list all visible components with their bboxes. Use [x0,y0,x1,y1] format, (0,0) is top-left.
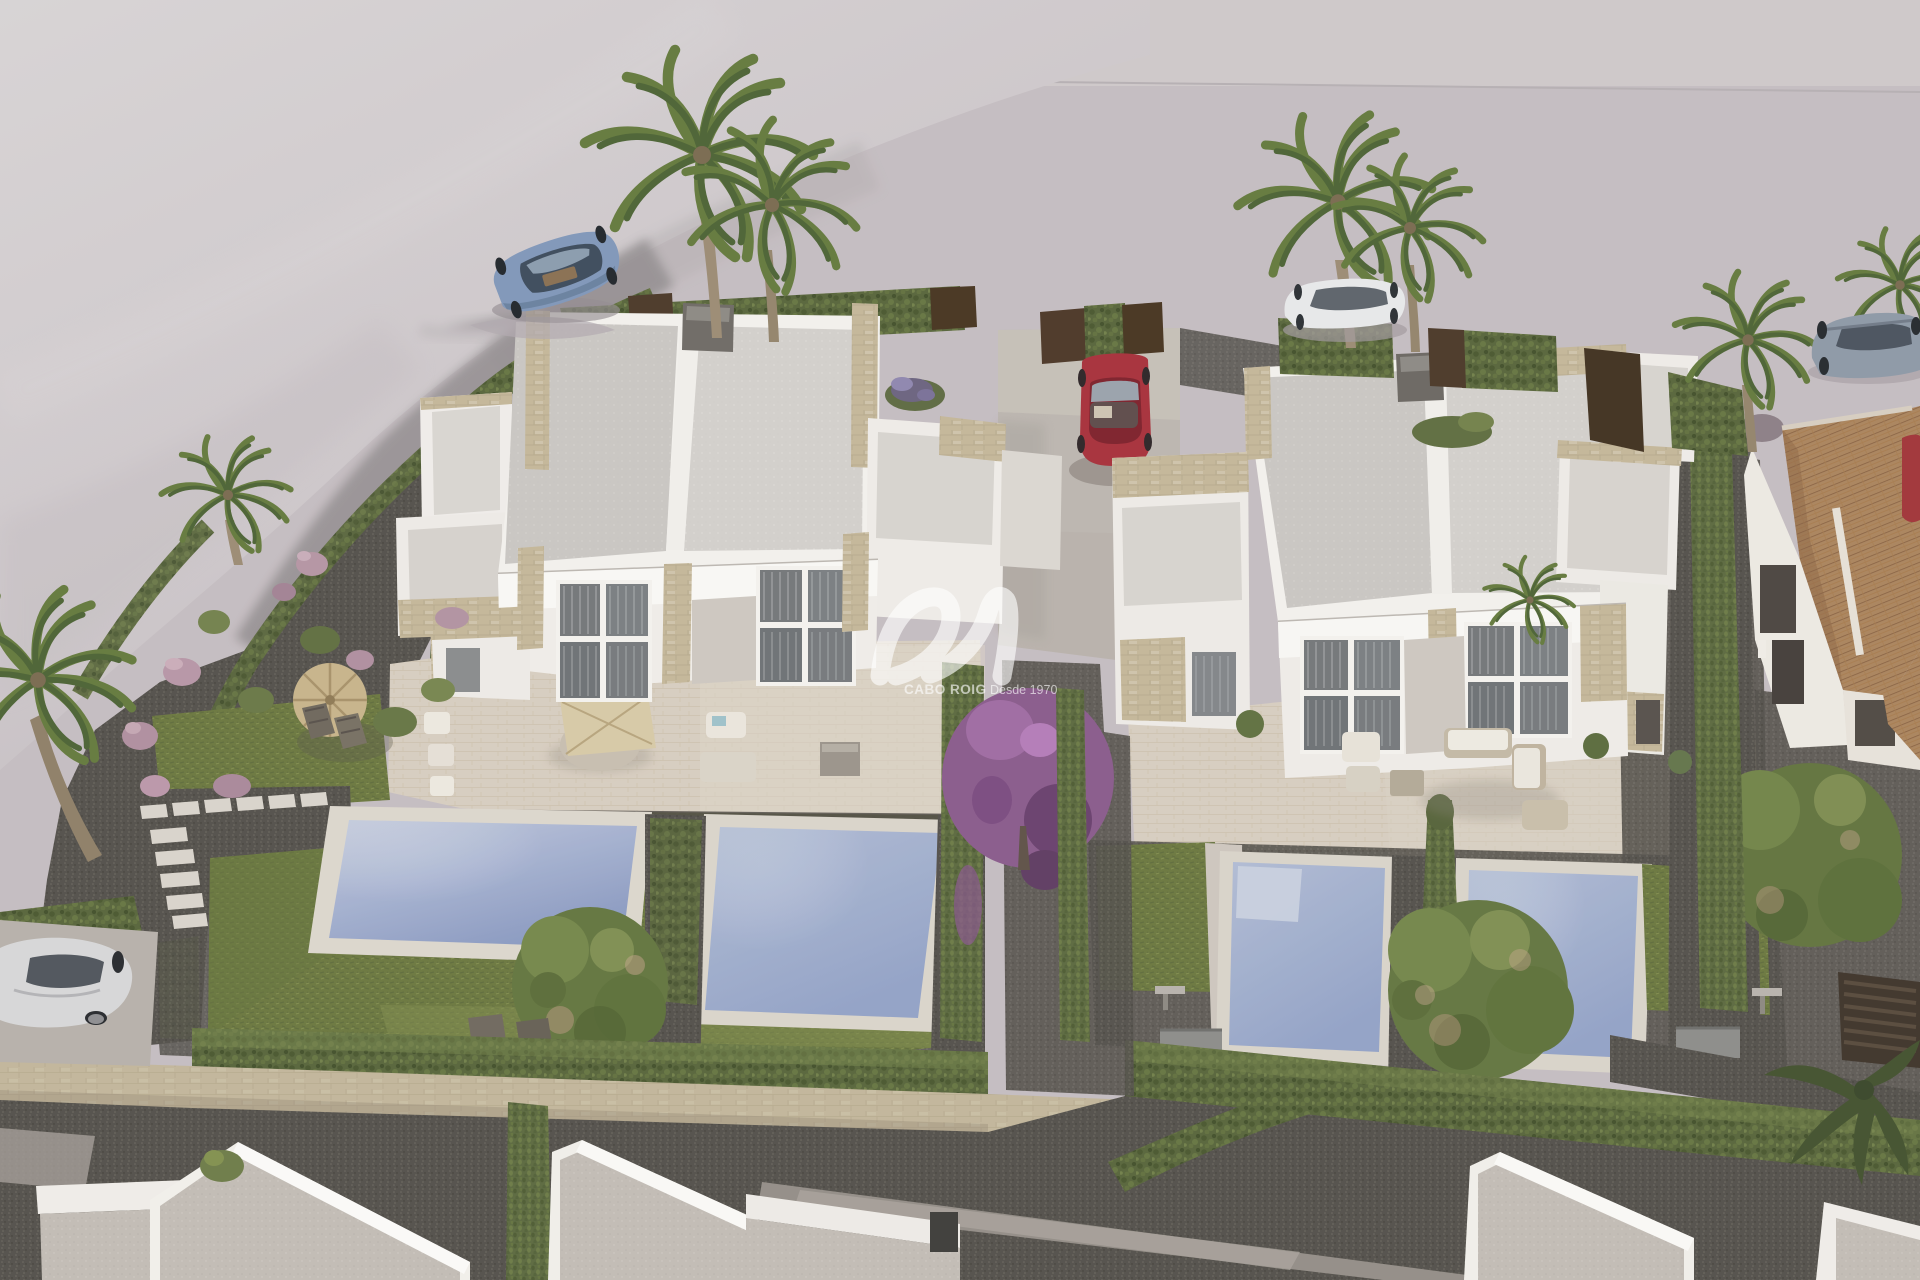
svg-text:CABO ROIG: CABO ROIG [904,682,987,697]
svg-text:Desde 1970: Desde 1970 [990,683,1057,697]
